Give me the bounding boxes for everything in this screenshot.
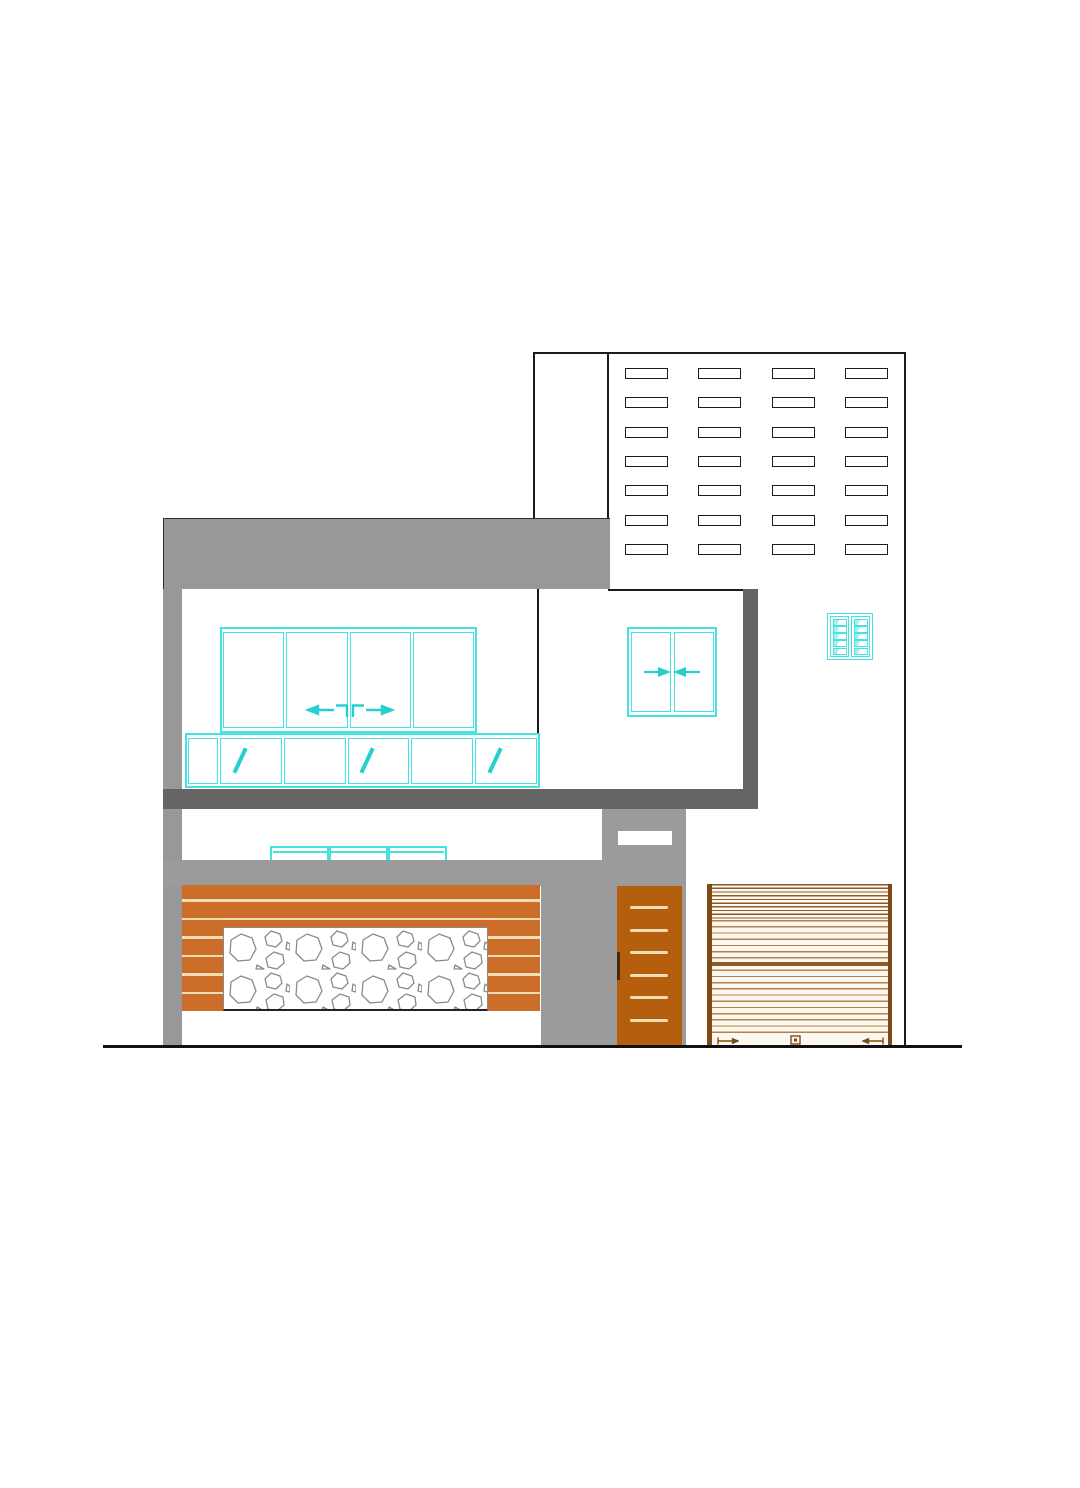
vent-opening xyxy=(772,397,815,408)
shutter-guide-right xyxy=(888,884,893,1046)
door-stripe xyxy=(630,1019,668,1022)
door-stripe xyxy=(630,951,668,954)
vent-opening xyxy=(698,485,741,496)
door-handle xyxy=(617,952,620,980)
vent-opening xyxy=(625,427,668,438)
vent-opening xyxy=(625,515,668,526)
vent-opening xyxy=(772,456,815,467)
left-pilaster xyxy=(163,589,182,1047)
slide-direction-arrows-icon xyxy=(627,627,717,717)
recess-corner-edge xyxy=(537,589,539,734)
vent-opening xyxy=(772,485,815,496)
vent-opening xyxy=(845,456,888,467)
shutter-rolled-slats xyxy=(711,884,888,920)
ground-line xyxy=(103,1045,962,1048)
shutter-slide-arrow-right-icon xyxy=(862,1037,884,1045)
shutter-guide-left xyxy=(707,884,712,1046)
vent-opening xyxy=(845,485,888,496)
transom-cell xyxy=(411,738,473,784)
vent-opening xyxy=(625,544,668,555)
door-transom-vent xyxy=(618,831,672,845)
vent-opening xyxy=(625,397,668,408)
glass-slash-icon xyxy=(360,747,375,773)
louver-slat xyxy=(833,640,847,647)
door-stripe xyxy=(630,996,668,999)
balcony-frame-right xyxy=(743,589,758,809)
shutter-slats xyxy=(711,920,888,1035)
vent-opening xyxy=(772,544,815,555)
vent-row xyxy=(625,485,888,496)
tower-top-edge xyxy=(533,352,906,354)
vent-opening xyxy=(845,544,888,555)
door-stripe xyxy=(630,929,668,932)
glass-slash-icon xyxy=(487,747,502,773)
vent-row xyxy=(625,397,888,408)
vent-opening xyxy=(845,427,888,438)
vent-opening xyxy=(845,515,888,526)
ventilator-panel xyxy=(830,616,849,657)
louver-slat xyxy=(854,640,868,647)
shutter-lock-icon xyxy=(790,1035,801,1045)
stone-pattern xyxy=(224,928,488,1011)
balcony-frame-bottom xyxy=(163,789,758,809)
louver-ventilator xyxy=(827,613,873,660)
vent-opening xyxy=(845,397,888,408)
vent-block-grid xyxy=(625,368,888,555)
vent-opening xyxy=(698,397,741,408)
vent-row xyxy=(625,368,888,379)
shutter-slide-arrow-left-icon xyxy=(717,1037,739,1045)
transom-cell xyxy=(220,738,282,784)
louver-slat xyxy=(833,626,847,633)
ground-floor-window-top xyxy=(270,846,447,861)
louver-slat xyxy=(833,633,847,640)
vent-opening xyxy=(698,544,741,555)
transom-cell xyxy=(284,738,346,784)
vent-row xyxy=(625,427,888,438)
transom-window-row xyxy=(185,733,540,788)
vent-opening xyxy=(845,368,888,379)
vent-row xyxy=(625,456,888,467)
tower-bottom-edge xyxy=(608,589,745,591)
vent-opening xyxy=(698,368,741,379)
rolling-shutter xyxy=(707,884,892,1046)
vent-row xyxy=(625,544,888,555)
tower-left-edge xyxy=(533,352,535,519)
louver-slat xyxy=(854,633,868,640)
vent-opening xyxy=(698,427,741,438)
vent-opening xyxy=(698,456,741,467)
slat-gap-line xyxy=(182,918,540,921)
ventilator-panel xyxy=(851,616,870,657)
glass-slash-icon xyxy=(232,747,247,773)
louver-slat xyxy=(833,619,847,626)
building-right-edge xyxy=(904,352,906,1046)
louver-slat xyxy=(854,648,868,655)
louver-slat xyxy=(854,619,868,626)
vent-opening xyxy=(772,368,815,379)
slat-gap-line xyxy=(182,899,540,902)
vent-row xyxy=(625,515,888,526)
vent-opening xyxy=(698,515,741,526)
elevation-canvas xyxy=(0,0,1080,1488)
entry-door xyxy=(617,886,682,1046)
louver-slat xyxy=(854,626,868,633)
louver-slat xyxy=(833,648,847,655)
vent-opening xyxy=(625,485,668,496)
transom-cell xyxy=(475,738,537,784)
tower-inner-edge xyxy=(607,352,609,520)
door-stripe xyxy=(630,906,668,909)
vent-opening xyxy=(772,427,815,438)
slide-direction-arrows-icon xyxy=(220,627,477,733)
shutter-mid-rail xyxy=(711,962,888,966)
ground-floor-window-frame-line xyxy=(273,851,444,853)
vent-opening xyxy=(625,456,668,467)
vent-opening xyxy=(772,515,815,526)
stone-feature-panel xyxy=(223,927,488,1011)
parapet-band xyxy=(163,518,610,589)
transom-cell xyxy=(188,738,218,784)
door-stripe xyxy=(630,974,668,977)
vent-opening xyxy=(625,368,668,379)
transom-cell xyxy=(348,738,410,784)
